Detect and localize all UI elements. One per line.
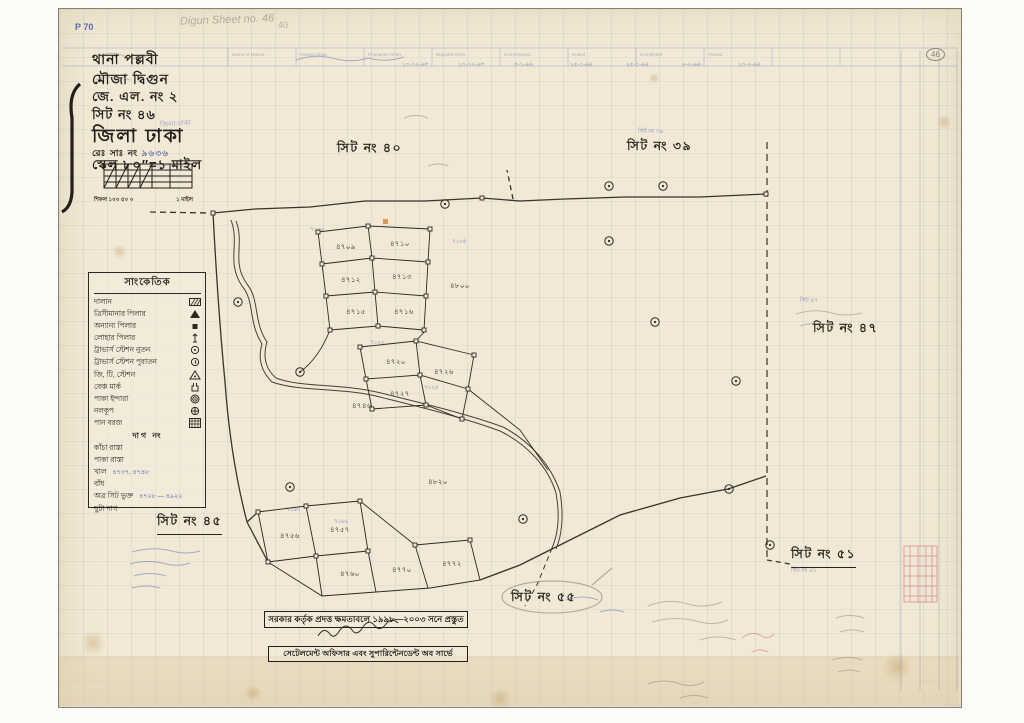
form-column-label: Traced <box>708 52 722 57</box>
plot-number: ৪৭৪৬ <box>352 400 372 412</box>
legend-item: ত্রিসীমানার পিলার <box>94 308 201 320</box>
legend-item: বেঞ্চ মার্ক <box>94 381 201 393</box>
handwritten-date: ১৫-১-৯৯ <box>570 60 593 71</box>
sheet-label: সিট নং ৫৫ <box>511 589 576 609</box>
dag-number-heading: দাগ নং <box>94 429 201 442</box>
form-column-label: Ended <box>572 52 585 57</box>
scanned-map-page: { "colors": {"paper":"#f1e9d5","ink":"#2… <box>0 0 1024 723</box>
blue-survey-number: ৭১৬২ <box>334 518 349 527</box>
legend-sub-item-label: পাকা রাস্তা <box>94 455 124 464</box>
legend-item-label: ট্রাভার্স স্টেশন নুতন <box>94 345 150 354</box>
handwritten-date: ২০-২-৯৯ <box>738 60 761 71</box>
plot-number: ৪৭৭২ <box>442 558 462 570</box>
legend-item-label: পাকা ইন্দারা <box>94 394 128 403</box>
sheet-pencil-note: সিট নং ৫১ <box>791 566 816 576</box>
circled-sheet-number: 46 <box>926 48 945 61</box>
plot-number: ৪৭৫৬ <box>280 530 300 542</box>
plot-number: ৪৭২৭ <box>390 388 410 400</box>
chain-scale-label: শিকল ১০০ ৫০ ০ <box>94 196 133 205</box>
legend-item-label: লোহার পিলার <box>94 333 135 342</box>
form-column-label: Name of Mouza <box>232 52 264 57</box>
plot-number: ৪৭১৫ <box>346 306 366 318</box>
mile-scale-label: ১ মাইল <box>176 196 193 205</box>
plot-number: ৪৭২৬ <box>434 366 454 378</box>
legend-item-label: ত্রিসীমানার পিলার <box>94 309 146 318</box>
plot-number: ৪৭০৯ <box>336 241 356 253</box>
legend-handwritten-note: ৪৭৩৭, ৪৭৪৮ <box>112 469 149 476</box>
legend-sub-item: বাঁধ <box>94 478 201 490</box>
legend-item: নলকূপ <box>94 405 201 417</box>
blue-survey-number: ৭১৬০ <box>286 506 301 515</box>
legend-item-label: অন্যান্য পিলার <box>94 321 136 330</box>
legend-item: জি, টি, স্টেশন <box>94 369 201 381</box>
legend-item-label: দালান <box>94 297 112 306</box>
legend-item-label: পান বরজ <box>94 418 122 427</box>
plot-number: ৪৮০০ <box>450 280 470 292</box>
legend-sub-item-label: কাঁচা রাস্তা <box>94 443 123 452</box>
blue-survey-number: ৭১২০ <box>370 339 385 348</box>
legend-sub-item-label: খাল <box>94 467 106 476</box>
form-column-label: Completed <box>640 52 662 57</box>
sheet-label: সিট নং ৪০ <box>337 140 402 160</box>
plot-number: ৪৭১২ <box>341 274 361 286</box>
legend-handwritten-note: ৪৭০৮ — ৪৯২০ <box>139 493 182 500</box>
handwritten-date: ২৫-১-৯৯ <box>626 60 649 71</box>
legend-item: ট্রাভার্স স্টেশন পুরাতন <box>94 356 201 368</box>
legend-item: পান বরজ <box>94 417 201 429</box>
foxing-stain <box>80 630 106 656</box>
form-column-label: Commenced <box>504 52 530 57</box>
legend-item-label: বেঞ্চ মার্ক <box>94 382 121 391</box>
legend-item: ট্রাভার্স স্টেশন নুতন <box>94 344 201 356</box>
blue-survey-number: ৭১০০ <box>310 226 325 235</box>
legend-sub-item-label: ছুটা দাগ <box>94 504 117 513</box>
plot-number: ৪৮২০ <box>428 476 448 488</box>
plot-number: ৪৭২০ <box>386 356 406 368</box>
foxing-stain <box>244 684 262 702</box>
government-stamp-line2: সেটেলমেন্ট অফিসার এবং সুপারিন্টেনডেন্ট অ… <box>268 646 468 662</box>
pencil-number-note: 40 <box>278 20 288 30</box>
legend-sub-item: কাঁচা রাস্তা <box>94 442 201 454</box>
sheet-pencil-note: সিট নং ৩৯ <box>638 127 663 137</box>
legend-title: সাংকেতিক <box>94 275 201 294</box>
legend-subrows: কাঁচা রাস্তাপাকা রাস্তাখাল৪৭৩৭, ৪৭৪৮বাঁধ… <box>94 442 201 515</box>
legend-sub-item-label: অত্র সিট ভুক্ত <box>94 491 133 500</box>
legend-item-label: জি, টি, স্টেশন <box>94 370 135 379</box>
plot-number: ৪৭১৩ <box>392 271 412 283</box>
legend-item: অন্যান্য পিলার <box>94 320 201 332</box>
foxing-stain <box>882 652 912 682</box>
legend-item: দালান <box>94 296 201 308</box>
form-column-label: Kistwar Khan <box>300 52 327 57</box>
crosshatch-rect-icon <box>189 418 201 432</box>
sheet-label: সিট নং ৩৯ <box>627 138 692 158</box>
sheet-pencil-note: সিট ৪৭ <box>800 296 818 306</box>
legend-sub-item: খাল৪৭৩৭, ৪৭৪৮ <box>94 466 201 478</box>
blue-survey-number: ৭১২৫ <box>424 384 439 393</box>
sheet-label: সিট নং ৪৭ <box>813 320 878 340</box>
foxing-stain <box>936 114 952 130</box>
legend-sub-item: পাকা রাস্তা <box>94 454 201 466</box>
government-stamp-line1: সরকার কর্তৃক প্রদত্ত ক্ষমতাবলে ১৯৯৮—২০০৩… <box>264 611 468 628</box>
legend-item-label: ট্রাভার্স স্টেশন পুরাতন <box>94 357 157 366</box>
handwritten-date: ১০-১২-৯৮ <box>402 60 429 71</box>
form-column-label: Bujharat Khan <box>436 52 465 57</box>
plot-number: ৪৭১৬ <box>394 306 414 318</box>
handwritten-date: ২০-১২-৯৮ <box>458 60 485 71</box>
plot-number: ৪৭১০ <box>390 238 410 250</box>
foxing-stain <box>112 244 127 259</box>
handwritten-date: ৮-২-৯৯ <box>682 60 701 71</box>
legend-item: লোহার পিলার <box>94 332 201 344</box>
legend-item-label: নলকূপ <box>94 406 114 415</box>
legend-rows: দালানত্রিসীমানার পিলারঅন্যান্য পিলারলোহা… <box>94 296 201 429</box>
scale-text: স্কেল ৮০″=১ মাইল <box>92 156 202 177</box>
form-column-label: Khanapuri Khan <box>368 52 401 57</box>
handwritten-date: ৫-১-৯৯ <box>514 60 533 71</box>
blue-survey-number: ৭১০৫ <box>452 238 467 247</box>
sheet-label: সিট নং ৫১ <box>791 546 856 568</box>
plot-number: ৪৭৬০ <box>340 568 360 580</box>
legend-item: পাকা ইন্দারা <box>94 393 201 405</box>
foxing-stain <box>648 72 660 84</box>
page-number: P 70 <box>75 22 93 32</box>
sheet-label: সিট নং ৪৫ <box>157 513 222 535</box>
legend-sub-item: অত্র সিট ভুক্ত৪৭০৮ — ৪৯২০ <box>94 490 201 502</box>
foxing-stain <box>489 688 511 710</box>
plot-number: ৪৭৭০ <box>392 564 412 576</box>
legend-sub-item-label: বাঁধ <box>94 479 104 488</box>
legend-box: সাংকেতিক দালানত্রিসীমানার পিলারঅন্যান্য … <box>88 272 206 508</box>
